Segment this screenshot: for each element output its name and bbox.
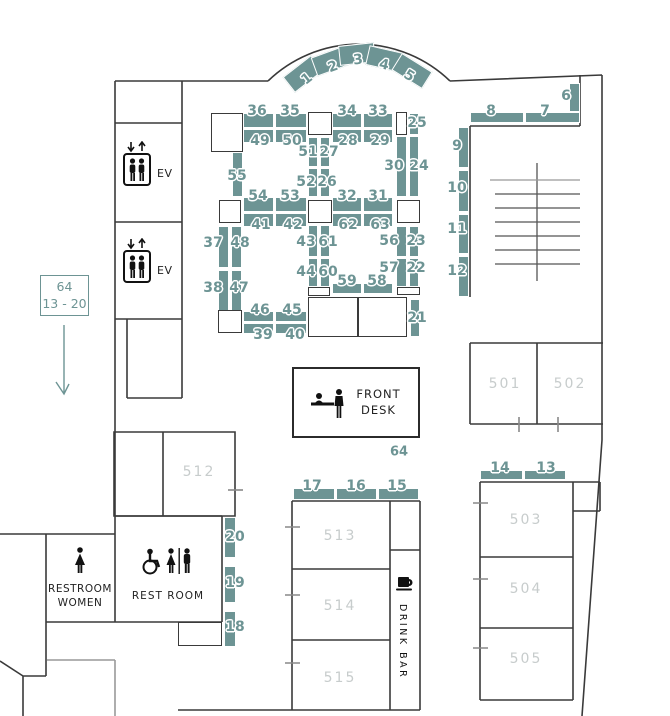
booth-13-number: 13: [536, 461, 555, 475]
elevator-1: EV: [122, 141, 172, 188]
booth-31-number: 31: [368, 189, 387, 203]
booth-60-number: 60: [318, 265, 337, 279]
booth-55-number: 55: [227, 169, 246, 183]
booth-21-number: 21: [407, 311, 426, 325]
lower-left-gray-walls: [47, 660, 115, 716]
booth-18-number: 18: [225, 620, 244, 634]
legend-arrow: [56, 325, 69, 394]
pillar-box: [211, 113, 243, 152]
booth-61-number: 61: [318, 235, 337, 249]
booth-4-number: 4: [378, 57, 391, 73]
booth-40-number: 40: [285, 328, 304, 342]
pillar-box: [308, 200, 332, 223]
pillar-box: [397, 200, 420, 223]
restroom-women-label: RESTROOM WOMEN: [48, 583, 112, 610]
room-label-505: 505: [510, 651, 543, 667]
booth-20-number: 20: [225, 530, 244, 544]
booth-28-number: 28: [338, 134, 357, 148]
elevator-icon: [122, 238, 152, 285]
booth-10-number: 10: [447, 181, 466, 195]
elevator-2: EV: [122, 238, 172, 285]
restroom-accessible-label: REST ROOM: [132, 590, 204, 604]
legend-text: 64 13 - 20: [42, 279, 86, 313]
booth-34-number: 34: [337, 104, 356, 118]
booth-38-number: 38: [203, 281, 222, 295]
booth-35-number: 35: [280, 104, 299, 118]
pillar-box: [358, 297, 407, 337]
pillar-box: [219, 200, 241, 223]
pillar-box: [308, 112, 332, 135]
booth-27-number: 27: [319, 145, 338, 159]
room-label-512: 512: [183, 464, 216, 480]
booth-49-number: 49: [250, 134, 269, 148]
restroom-walls: [0, 516, 222, 716]
booth-22-number: 22: [406, 261, 425, 275]
booth-32-number: 32: [337, 189, 356, 203]
front-desk-label: FRONT DESK: [356, 387, 400, 418]
stairs: [490, 163, 580, 281]
booth-42-number: 42: [283, 218, 302, 232]
elevator-icon: [122, 141, 152, 188]
booth-59-number: 59: [337, 274, 356, 288]
booth-52-number: 52: [296, 175, 315, 189]
booth-51-number: 51: [298, 145, 317, 159]
booth-37-number: 37: [203, 236, 222, 250]
booth-62-number: 62: [338, 218, 357, 232]
booth-16-number: 16: [346, 479, 365, 493]
booth-6-number: 6: [561, 89, 571, 103]
elevator-label: EV: [157, 264, 172, 277]
booth-44-number: 44: [296, 265, 315, 279]
booth-63-number: 63: [370, 218, 389, 232]
rooms-513-515-walls: [178, 501, 420, 710]
booth-54-number: 54: [248, 189, 267, 203]
accessible-restroom-icons: [140, 548, 194, 578]
room-label-513: 513: [324, 528, 357, 544]
room-label-504: 504: [510, 581, 543, 597]
booth-19-number: 19: [225, 576, 244, 590]
booth-33-number: 33: [368, 104, 387, 118]
booth-17-number: 17: [302, 479, 321, 493]
booth-23-number: 23: [406, 234, 425, 248]
elevator-label: EV: [157, 167, 172, 180]
pillar-box: [397, 287, 420, 295]
booth-7-number: 7: [540, 104, 550, 118]
pillar-box: [308, 297, 358, 337]
pillar-box: [178, 622, 222, 646]
booth-25-number: 25: [407, 116, 426, 130]
front-desk: FRONT DESK: [292, 367, 420, 438]
drink-bar-label: DRINK BAR: [397, 604, 408, 679]
booth-36-number: 36: [247, 104, 266, 118]
booth-26-number: 26: [317, 175, 336, 189]
booth-12-number: 12: [447, 264, 466, 278]
pillar-box: [218, 310, 242, 333]
booth-47-number: 47: [229, 281, 248, 295]
booth-8: [470, 112, 524, 123]
booth-24-number: 24: [409, 159, 428, 173]
floor-plan: 64 13 - 20 EV: [0, 0, 670, 716]
booth-29-number: 29: [370, 134, 389, 148]
booth-48-number: 48: [230, 236, 249, 250]
booth-53-number: 53: [280, 189, 299, 203]
room-label-501: 501: [489, 376, 522, 392]
pillar-box: [308, 287, 330, 296]
front-desk-booth-number: 64: [390, 446, 408, 459]
booth-7: [525, 112, 580, 123]
booth-39-number: 39: [253, 328, 272, 342]
legend-box: 64 13 - 20: [40, 275, 89, 316]
booth-3-number: 3: [352, 53, 363, 68]
booth-14-number: 14: [490, 461, 509, 475]
room-label-502: 502: [554, 376, 587, 392]
room-512-walls: [114, 432, 235, 516]
coffee-icon: [396, 575, 418, 593]
booth-45-number: 45: [282, 303, 301, 317]
room-label-514: 514: [324, 598, 357, 614]
room-label-515: 515: [324, 670, 357, 686]
booth-8-number: 8: [486, 104, 496, 118]
booth-11-number: 11: [447, 222, 466, 236]
booth-9-number: 9: [452, 139, 462, 153]
booth-43-number: 43: [296, 235, 315, 249]
booth-56-number: 56: [379, 234, 398, 248]
room-label-503: 503: [510, 512, 543, 528]
woman-icon: [73, 547, 87, 575]
front-desk-icon: [311, 387, 347, 419]
booth-58-number: 58: [367, 274, 386, 288]
booth-46-number: 46: [250, 303, 269, 317]
booth-41-number: 41: [251, 218, 270, 232]
pillar-box: [396, 112, 407, 135]
booth-15-number: 15: [387, 479, 406, 493]
booth-30-number: 30: [384, 159, 403, 173]
